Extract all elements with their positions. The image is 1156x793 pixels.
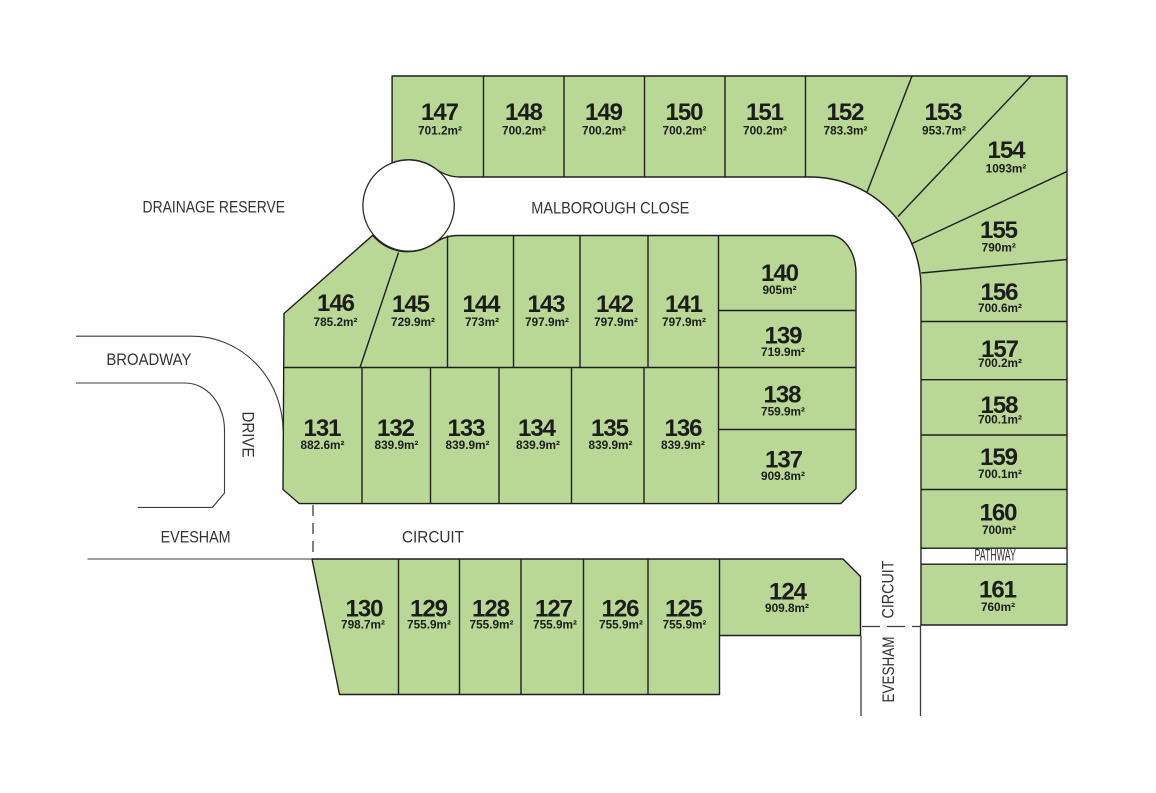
svg-text:1093m²: 1093m² xyxy=(986,162,1027,176)
svg-text:785.2m²: 785.2m² xyxy=(314,315,358,329)
svg-text:CIRCUIT: CIRCUIT xyxy=(402,528,464,547)
svg-text:700.2m²: 700.2m² xyxy=(978,356,1022,370)
svg-text:700.1m²: 700.1m² xyxy=(978,413,1022,427)
svg-text:909.8m²: 909.8m² xyxy=(765,601,809,615)
svg-text:839.9m²: 839.9m² xyxy=(516,438,560,452)
svg-text:152: 152 xyxy=(827,99,865,126)
svg-text:700.2m²: 700.2m² xyxy=(663,124,707,138)
svg-text:CIRCUIT: CIRCUIT xyxy=(879,561,898,619)
svg-text:839.9m²: 839.9m² xyxy=(661,438,705,452)
svg-text:EVESHAM: EVESHAM xyxy=(879,637,898,703)
svg-text:141: 141 xyxy=(665,291,703,318)
svg-text:PATHWAY: PATHWAY xyxy=(974,545,1016,564)
svg-text:153: 153 xyxy=(925,99,963,126)
svg-text:700.2m²: 700.2m² xyxy=(502,124,546,138)
svg-text:144: 144 xyxy=(463,291,502,318)
svg-text:148: 148 xyxy=(505,99,543,126)
svg-text:719.9m²: 719.9m² xyxy=(761,345,805,359)
svg-text:154: 154 xyxy=(988,137,1027,164)
svg-text:146: 146 xyxy=(317,290,355,317)
svg-text:700.1m²: 700.1m² xyxy=(978,467,1022,481)
svg-text:797.9m²: 797.9m² xyxy=(525,315,569,329)
svg-text:755.9m²: 755.9m² xyxy=(663,617,707,631)
svg-text:755.9m²: 755.9m² xyxy=(470,617,514,631)
svg-text:797.9m²: 797.9m² xyxy=(662,315,706,329)
svg-text:755.9m²: 755.9m² xyxy=(599,617,643,631)
svg-text:149: 149 xyxy=(585,99,623,126)
svg-text:882.6m²: 882.6m² xyxy=(301,438,345,452)
svg-text:760m²: 760m² xyxy=(981,600,1015,614)
svg-text:BROADWAY: BROADWAY xyxy=(106,350,191,369)
svg-text:755.9m²: 755.9m² xyxy=(407,617,451,631)
svg-text:700m²: 700m² xyxy=(982,523,1016,537)
svg-text:798.7m²: 798.7m² xyxy=(341,617,385,631)
svg-text:DRAINAGE RESERVE: DRAINAGE RESERVE xyxy=(143,198,286,217)
svg-text:783.3m²: 783.3m² xyxy=(824,124,868,138)
svg-text:143: 143 xyxy=(528,291,566,318)
svg-text:EVESHAM: EVESHAM xyxy=(161,528,231,547)
svg-text:DRIVE: DRIVE xyxy=(239,412,258,458)
svg-text:797.9m²: 797.9m² xyxy=(594,315,638,329)
svg-text:700.2m²: 700.2m² xyxy=(743,124,787,138)
svg-text:839.9m²: 839.9m² xyxy=(446,438,490,452)
svg-text:147: 147 xyxy=(421,99,459,126)
svg-text:701.2m²: 701.2m² xyxy=(418,124,462,138)
svg-text:755.9m²: 755.9m² xyxy=(533,617,577,631)
svg-text:MALBOROUGH CLOSE: MALBOROUGH CLOSE xyxy=(531,199,689,218)
svg-text:905m²: 905m² xyxy=(762,283,796,297)
svg-text:700.2m²: 700.2m² xyxy=(582,124,626,138)
svg-text:145: 145 xyxy=(392,291,430,318)
svg-text:839.9m²: 839.9m² xyxy=(589,438,633,452)
svg-text:142: 142 xyxy=(596,291,634,318)
svg-text:773m²: 773m² xyxy=(465,315,499,329)
svg-text:790m²: 790m² xyxy=(982,241,1016,255)
svg-text:729.9m²: 729.9m² xyxy=(391,315,435,329)
svg-text:151: 151 xyxy=(746,99,784,126)
svg-text:759.9m²: 759.9m² xyxy=(761,405,805,419)
svg-text:700.6m²: 700.6m² xyxy=(978,301,1022,315)
svg-text:150: 150 xyxy=(666,99,704,126)
svg-text:909.8m²: 909.8m² xyxy=(761,469,805,483)
svg-text:953.7m²: 953.7m² xyxy=(922,124,966,138)
svg-text:839.9m²: 839.9m² xyxy=(375,438,419,452)
